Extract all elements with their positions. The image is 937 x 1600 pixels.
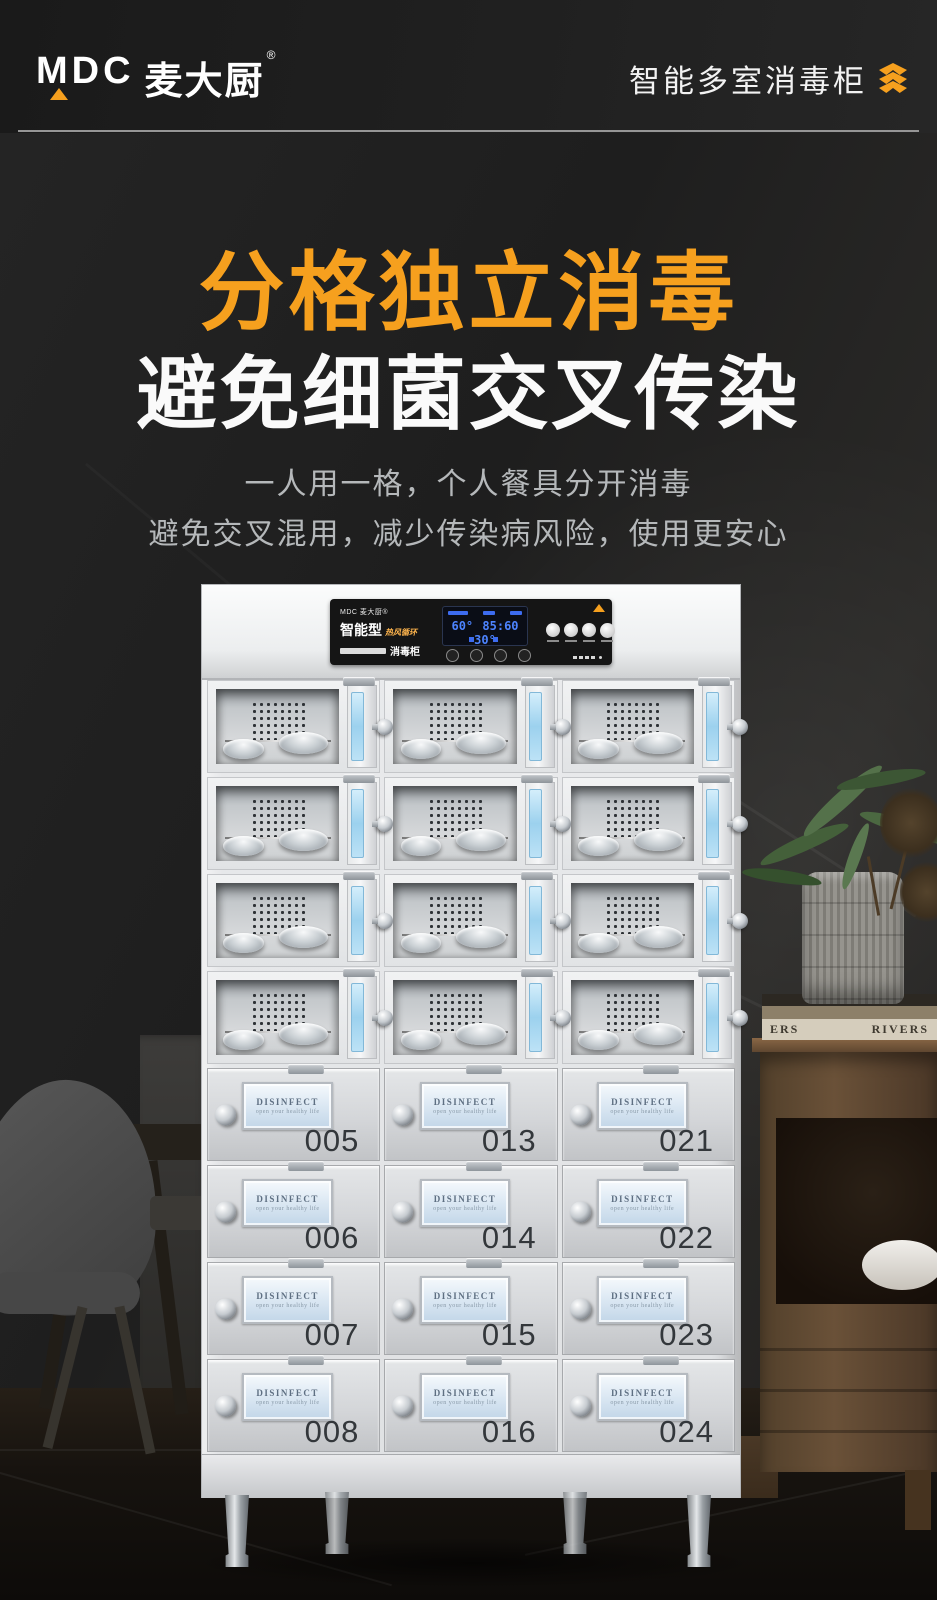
steel-bowl [223, 739, 264, 759]
door-hinge [698, 968, 730, 977]
hero-title-white: 避免细菌交叉传染 [0, 330, 937, 446]
door-hinge [698, 871, 730, 880]
drawer-number: 021 [659, 1123, 714, 1159]
steel-bowl [279, 926, 328, 949]
drawer-knob [215, 1395, 236, 1416]
compartment-cavity [216, 689, 339, 764]
drawer-hinge [466, 1258, 502, 1268]
drawer-window-title: DISINFECT [434, 1388, 497, 1398]
drawer-hinge [466, 1161, 502, 1171]
lcd-display: 60° 85:60 30° [442, 606, 528, 646]
drawer-hinge [288, 1258, 324, 1268]
compartment-cavity [393, 883, 516, 958]
steel-bowl [223, 836, 264, 856]
drawer-window-subtitle: open your healthy life [433, 1109, 497, 1115]
compartment-cavity [571, 980, 694, 1055]
door-hinge [343, 774, 375, 783]
steel-bowl [634, 926, 683, 949]
drawer-hinge [466, 1064, 502, 1074]
lcd-indicator-dot [493, 637, 498, 642]
drawer-hinge [643, 1064, 679, 1074]
hero-description: 一人用一格，个人餐具分开消毒 避免交叉混用，减少传染病风险，使用更安心 [0, 460, 937, 560]
brand-cn: 麦大厨 [145, 50, 265, 105]
panel-brand-small: MDC 麦大厨® [340, 607, 432, 617]
compartment-cavity [216, 980, 339, 1055]
compartment-cavity [216, 883, 339, 958]
door-knob [732, 913, 748, 929]
door-glass [706, 983, 719, 1052]
drawer-window-title: DISINFECT [611, 1388, 674, 1398]
panel-function-icon [582, 623, 596, 637]
lcd-time-center: 85:60 [482, 619, 518, 633]
steel-bowl [578, 836, 619, 856]
drawer-number: 006 [305, 1220, 360, 1256]
drawer-cell: DISINFECTopen your healthy life013 [384, 1068, 557, 1161]
drawer-cell: DISINFECTopen your healthy life015 [384, 1262, 557, 1355]
steel-bowl [578, 1030, 619, 1050]
panel-icon-label-bar [583, 640, 595, 642]
drawer-cell: DISINFECTopen your healthy life023 [562, 1262, 735, 1355]
white-bowl [862, 1240, 937, 1290]
compartment-cell [207, 874, 380, 967]
panel-function-icon [564, 623, 578, 637]
book-spine-tan [762, 1006, 937, 1019]
drawer-grid: DISINFECTopen your healthy life005 DISIN… [207, 1068, 735, 1452]
steel-bowl [279, 732, 328, 755]
drawer-window-subtitle: open your healthy life [610, 1303, 674, 1309]
book-spine-text-right: RIVERS [872, 1022, 929, 1037]
door-glass [351, 983, 364, 1052]
dried-plant [880, 788, 937, 858]
drawer-knob [570, 1395, 591, 1416]
drawer-window-subtitle: open your healthy life [256, 1206, 320, 1212]
compartment-cell [384, 777, 557, 870]
sideboard-top [752, 1038, 937, 1052]
drawer-window-title: DISINFECT [434, 1097, 497, 1107]
door-hinge [521, 871, 553, 880]
drawer-knob [392, 1104, 413, 1125]
door-hinge [343, 871, 375, 880]
door-hinge [521, 968, 553, 977]
steel-bowl [456, 1023, 505, 1046]
panel-function-icon [546, 623, 560, 637]
lcd-indicator-dot [469, 637, 474, 642]
door-knob [555, 1010, 571, 1026]
steel-bowl [279, 1023, 328, 1046]
drawer-hinge [466, 1355, 502, 1365]
drawer-number: 015 [482, 1317, 537, 1353]
drawer-number: 007 [305, 1317, 360, 1353]
compartment-cavity [571, 883, 694, 958]
page-root: MDC 麦大厨 ® 智能多室消毒柜 ERS RIV [0, 0, 937, 1600]
steel-bowl [634, 732, 683, 755]
header-divider [18, 130, 919, 132]
steel-bowl [456, 829, 505, 852]
compartment-grid [207, 680, 735, 1064]
drawer-window-subtitle: open your healthy life [610, 1109, 674, 1115]
triple-chevron-up-icon [879, 66, 907, 93]
sideboard-grooves [760, 1310, 937, 1470]
panel-footnote-dashes [573, 656, 602, 659]
drawer-knob [392, 1201, 413, 1222]
door-knob [377, 1010, 393, 1026]
hero-desc-line1: 一人用一格，个人餐具分开消毒 [0, 460, 937, 510]
door-knob [732, 1010, 748, 1026]
door-hinge [521, 774, 553, 783]
steel-bowl [634, 1023, 683, 1046]
drawer-window-title: DISINFECT [611, 1097, 674, 1107]
drawer-number: 016 [482, 1414, 537, 1450]
drawer-cell: DISINFECTopen your healthy life021 [562, 1068, 735, 1161]
drawer-knob [570, 1104, 591, 1125]
drawer-number: 005 [305, 1123, 360, 1159]
drawer-window-subtitle: open your healthy life [433, 1400, 497, 1406]
drawer-number: 013 [482, 1123, 537, 1159]
control-panel: MDC 麦大厨® 智能型 热风循环 消毒柜 [330, 599, 612, 665]
door-knob [377, 816, 393, 832]
hero-title-orange: 分格独立消毒 [0, 222, 937, 347]
panel-product-label: 消毒柜 [390, 643, 420, 658]
steel-bowl [223, 1030, 264, 1050]
lcd-label-bar [483, 611, 495, 615]
header-tagline-group: 智能多室消毒柜 [629, 56, 907, 101]
drawer-window-subtitle: open your healthy life [433, 1206, 497, 1212]
compartment-cell [207, 680, 380, 773]
drawer-window-subtitle: open your healthy life [256, 1303, 320, 1309]
drawer-knob [392, 1395, 413, 1416]
drawer-window-subtitle: open your healthy life [433, 1303, 497, 1309]
steel-bowl [578, 739, 619, 759]
drawer-window-title: DISINFECT [434, 1194, 497, 1204]
door-hinge [698, 677, 730, 686]
door-glass [706, 886, 719, 955]
drawer-hinge [288, 1064, 324, 1074]
door-hinge [343, 677, 375, 686]
brand-latin: MDC [36, 50, 135, 93]
door-glass [351, 789, 364, 858]
drawer-number: 022 [659, 1220, 714, 1256]
panel-branding: MDC 麦大厨® 智能型 热风循环 消毒柜 [340, 607, 432, 658]
compartment-cell [384, 874, 557, 967]
brand-logo: MDC 麦大厨 ® [36, 50, 275, 105]
drawer-window-title: DISINFECT [611, 1291, 674, 1301]
cabinet-floor-shadow [188, 1538, 760, 1588]
panel-corner-triangle-icon [593, 604, 605, 612]
drawer-knob [215, 1298, 236, 1319]
cabinet-top-band: MDC 麦大厨® 智能型 热风循环 消毒柜 [202, 585, 740, 680]
drawer-number: 023 [659, 1317, 714, 1353]
door-glass [529, 983, 542, 1052]
lcd-temp-left: 60° [451, 619, 473, 633]
lcd-label-bar [510, 611, 522, 615]
drawer-hinge [643, 1161, 679, 1171]
drawer-window-title: DISINFECT [611, 1194, 674, 1204]
steel-bowl [279, 829, 328, 852]
drawer-window-subtitle: open your healthy life [256, 1400, 320, 1406]
drawer-hinge [288, 1161, 324, 1171]
door-hinge [343, 968, 375, 977]
drawer-knob [215, 1201, 236, 1222]
compartment-cell [207, 971, 380, 1064]
panel-start-button [518, 649, 531, 662]
drawer-hinge [288, 1355, 324, 1365]
door-hinge [698, 774, 730, 783]
header-tagline: 智能多室消毒柜 [629, 56, 867, 101]
steel-bowl [401, 836, 442, 856]
door-glass [351, 886, 364, 955]
drawer-number: 024 [659, 1414, 714, 1450]
compartment-cavity [571, 689, 694, 764]
steel-bowl [578, 933, 619, 953]
drawer-window-title: DISINFECT [256, 1097, 319, 1107]
drawer-window-title: DISINFECT [434, 1291, 497, 1301]
panel-icon-label-bar [601, 640, 613, 642]
header-bar: MDC 麦大厨 ® 智能多室消毒柜 [0, 0, 937, 133]
drawer-knob [215, 1104, 236, 1125]
steel-bowl [456, 926, 505, 949]
panel-feature-label: 热风循环 [385, 627, 417, 638]
drawer-knob [570, 1201, 591, 1222]
panel-function-icon [600, 623, 615, 638]
drawer-cell: DISINFECTopen your healthy life006 [207, 1165, 380, 1258]
cabinet-bottom-band [202, 1454, 740, 1498]
drawer-number: 014 [482, 1220, 537, 1256]
compartment-cell [207, 777, 380, 870]
drawer-window-title: DISINFECT [256, 1291, 319, 1301]
panel-type-label: 智能型 [340, 620, 382, 640]
drawer-cell: DISINFECTopen your healthy life016 [384, 1359, 557, 1452]
drawer-window-subtitle: open your healthy life [256, 1109, 320, 1115]
drawer-cell: DISINFECTopen your healthy life007 [207, 1262, 380, 1355]
panel-down-button [494, 649, 507, 662]
drawer-cell: DISINFECTopen your healthy life008 [207, 1359, 380, 1452]
panel-icon-label-bar [565, 640, 577, 642]
drawer-cell: DISINFECTopen your healthy life022 [562, 1165, 735, 1258]
panel-up-button [470, 649, 483, 662]
steel-bowl [401, 933, 442, 953]
drawer-window-subtitle: open your healthy life [610, 1206, 674, 1212]
registered-mark: ® [267, 48, 276, 62]
drawer-hinge [643, 1355, 679, 1365]
door-knob [377, 719, 393, 735]
door-glass [529, 692, 542, 761]
compartment-cell [562, 680, 735, 773]
compartment-cavity [571, 786, 694, 861]
door-knob [555, 816, 571, 832]
steel-bowl [634, 829, 683, 852]
drawer-knob [392, 1298, 413, 1319]
drawer-cell: DISINFECTopen your healthy life014 [384, 1165, 557, 1258]
lcd-label-bar [448, 611, 468, 615]
door-glass [529, 886, 542, 955]
door-knob [377, 913, 393, 929]
panel-english-bar [340, 648, 386, 654]
book-spine-text-left: ERS [770, 1022, 799, 1037]
steel-bowl [401, 1030, 442, 1050]
compartment-cell [562, 777, 735, 870]
steel-bowl [223, 933, 264, 953]
compartment-cell [384, 680, 557, 773]
drawer-hinge [643, 1258, 679, 1268]
compartment-cavity [393, 689, 516, 764]
drawer-knob [570, 1298, 591, 1319]
door-glass [529, 789, 542, 858]
door-hinge [521, 677, 553, 686]
compartment-cavity [216, 786, 339, 861]
door-knob [732, 816, 748, 832]
steel-bowl [401, 739, 442, 759]
drawer-window-subtitle: open your healthy life [610, 1400, 674, 1406]
compartment-cavity [393, 980, 516, 1055]
door-glass [351, 692, 364, 761]
door-glass [706, 692, 719, 761]
compartment-cell [562, 874, 735, 967]
door-glass [706, 789, 719, 858]
hero-desc-line2: 避免交叉混用，减少传染病风险，使用更安心 [0, 510, 937, 560]
steel-bowl [456, 732, 505, 755]
drawer-window-title: DISINFECT [256, 1194, 319, 1204]
book-spine-cream: ERS RIVERS [762, 1019, 937, 1040]
compartment-cavity [393, 786, 516, 861]
drawer-number: 008 [305, 1414, 360, 1450]
sideboard-leg [905, 1470, 931, 1530]
panel-power-button [446, 649, 459, 662]
ribbed-vase [802, 872, 904, 1004]
compartment-cell [562, 971, 735, 1064]
door-knob [555, 913, 571, 929]
m-notch-icon [50, 88, 68, 100]
drawer-window-title: DISINFECT [256, 1388, 319, 1398]
drawer-cell: DISINFECTopen your healthy life005 [207, 1068, 380, 1161]
disinfection-cabinet: MDC 麦大厨® 智能型 热风循环 消毒柜 [202, 585, 740, 1497]
panel-icon-label-bar [547, 640, 559, 642]
compartment-cell [384, 971, 557, 1064]
door-knob [555, 719, 571, 735]
drawer-cell: DISINFECTopen your healthy life024 [562, 1359, 735, 1452]
door-knob [732, 719, 748, 735]
